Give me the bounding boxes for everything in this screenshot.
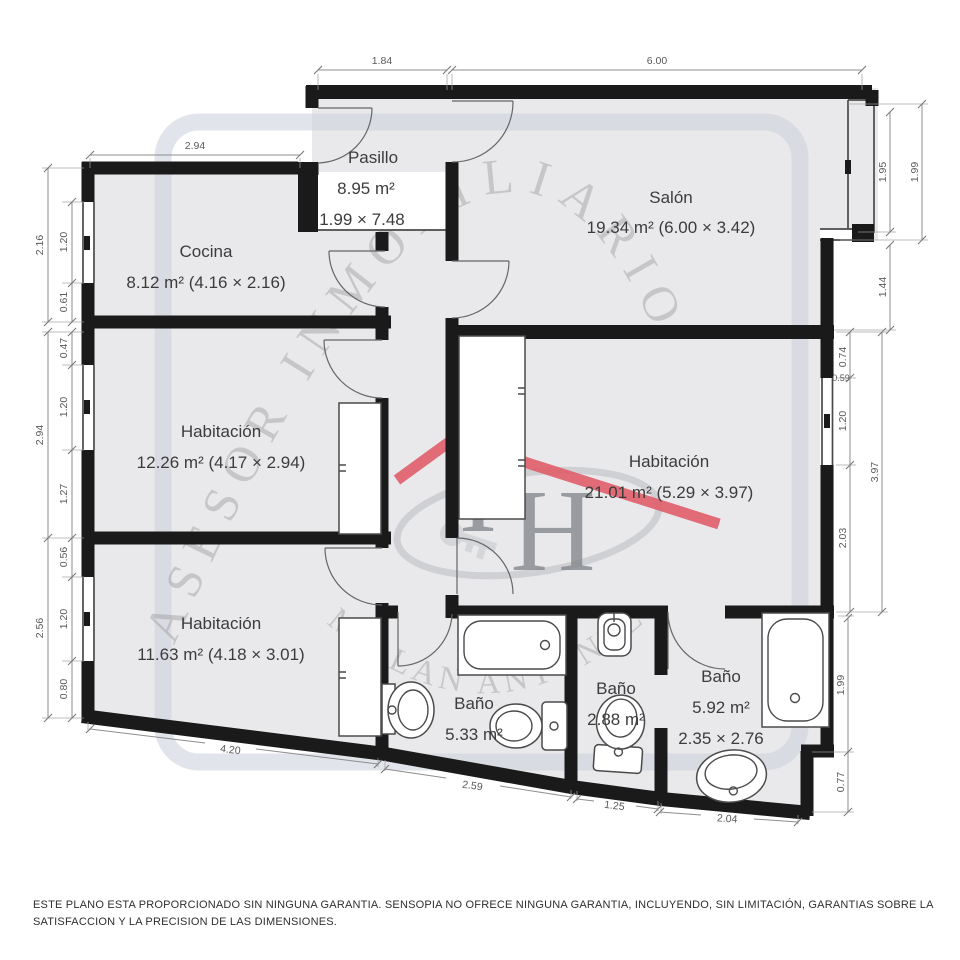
svg-text:2.16: 2.16 bbox=[34, 235, 46, 256]
svg-text:8.95 m²: 8.95 m² bbox=[337, 179, 395, 198]
svg-text:Baño: Baño bbox=[596, 679, 636, 698]
svg-text:Pasillo: Pasillo bbox=[348, 148, 398, 167]
svg-text:19.34 m² (6.00 × 3.42): 19.34 m² (6.00 × 3.42) bbox=[587, 218, 756, 237]
svg-text:5.33 m²: 5.33 m² bbox=[445, 725, 503, 744]
svg-text:1.27: 1.27 bbox=[58, 484, 70, 505]
svg-text:21.01 m² (5.29 × 3.97): 21.01 m² (5.29 × 3.97) bbox=[585, 483, 754, 502]
svg-text:12.26 m² (4.17 × 2.94): 12.26 m² (4.17 × 2.94) bbox=[137, 453, 306, 472]
svg-text:1.84: 1.84 bbox=[372, 55, 393, 67]
svg-text:0.80: 0.80 bbox=[58, 679, 70, 700]
svg-text:1.44: 1.44 bbox=[877, 277, 889, 298]
svg-text:1.99: 1.99 bbox=[909, 162, 921, 183]
svg-text:1.20: 1.20 bbox=[58, 397, 70, 418]
svg-text:1.25: 1.25 bbox=[603, 799, 625, 813]
disclaimer-text: ESTE PLANO ESTA PROPORCIONADO SIN NINGUN… bbox=[33, 897, 945, 930]
window-bedroom-mid bbox=[81, 365, 95, 450]
svg-text:1.20: 1.20 bbox=[58, 609, 70, 630]
sink-bath-2 bbox=[598, 613, 631, 656]
wardrobe-bedroom-right bbox=[459, 336, 525, 519]
svg-text:0.47: 0.47 bbox=[58, 338, 70, 359]
svg-text:2.04: 2.04 bbox=[717, 812, 738, 825]
svg-text:Salón: Salón bbox=[649, 188, 692, 207]
svg-text:0.61: 0.61 bbox=[58, 292, 70, 313]
svg-text:Habitación: Habitación bbox=[181, 422, 261, 441]
window-kitchen bbox=[81, 202, 95, 283]
window-bedroom-low bbox=[81, 577, 95, 661]
dim-labels-left: 2.16 2.94 2.56 1.20 0.61 0.47 1.20 1.27 … bbox=[34, 232, 70, 700]
bathtub-bath-1 bbox=[458, 615, 566, 675]
svg-text:6.00: 6.00 bbox=[647, 55, 668, 67]
bathtub-bath-3 bbox=[762, 613, 829, 727]
svg-text:Baño: Baño bbox=[701, 667, 741, 686]
svg-text:0.77: 0.77 bbox=[835, 772, 847, 793]
svg-text:2.56: 2.56 bbox=[34, 618, 46, 639]
toilet-bath-2 bbox=[593, 693, 646, 773]
svg-text:2.03: 2.03 bbox=[837, 528, 849, 549]
svg-text:1.99: 1.99 bbox=[835, 675, 847, 696]
svg-text:1.20: 1.20 bbox=[58, 232, 70, 253]
svg-text:2.94: 2.94 bbox=[185, 140, 206, 152]
svg-text:1.95: 1.95 bbox=[877, 162, 889, 183]
svg-text:1.20: 1.20 bbox=[837, 411, 849, 432]
floor-plan-svg: ASESOR INMOBILIARIO MILLAN ANTUNEZ I H bbox=[0, 0, 960, 960]
svg-text:0.56: 0.56 bbox=[58, 547, 70, 568]
svg-text:Habitación: Habitación bbox=[629, 452, 709, 471]
svg-text:2.88 m²: 2.88 m² bbox=[587, 710, 645, 729]
svg-text:Cocina: Cocina bbox=[180, 242, 233, 261]
svg-text:5.92 m²: 5.92 m² bbox=[692, 698, 750, 717]
svg-text:8.12 m² (4.16 × 2.16): 8.12 m² (4.16 × 2.16) bbox=[126, 273, 285, 292]
svg-text:2.35 × 2.76: 2.35 × 2.76 bbox=[678, 729, 764, 748]
svg-text:Habitación: Habitación bbox=[181, 614, 261, 633]
wardrobe-bedroom-low bbox=[339, 618, 381, 736]
svg-text:1.99 × 7.48: 1.99 × 7.48 bbox=[319, 210, 405, 229]
svg-text:11.63 m² (4.18 × 3.01): 11.63 m² (4.18 × 3.01) bbox=[137, 645, 304, 664]
svg-text:2.59: 2.59 bbox=[461, 779, 483, 794]
svg-text:2.94: 2.94 bbox=[34, 425, 46, 446]
window-bedroom-right bbox=[820, 378, 834, 465]
svg-text:Baño: Baño bbox=[454, 694, 494, 713]
svg-text:0.74: 0.74 bbox=[837, 347, 849, 368]
sink-bath-1 bbox=[382, 682, 434, 738]
svg-text:4.20: 4.20 bbox=[219, 743, 241, 757]
wardrobe-bedroom-mid bbox=[339, 403, 381, 534]
dim-labels-right: 1.95 1.99 1.44 0.74 0.59 1.20 2.03 3.97 … bbox=[832, 162, 921, 793]
floor-plan-page: ASESOR INMOBILIARIO MILLAN ANTUNEZ I H bbox=[0, 0, 960, 960]
svg-text:3.97: 3.97 bbox=[869, 462, 881, 483]
svg-text:0.59: 0.59 bbox=[832, 373, 850, 383]
